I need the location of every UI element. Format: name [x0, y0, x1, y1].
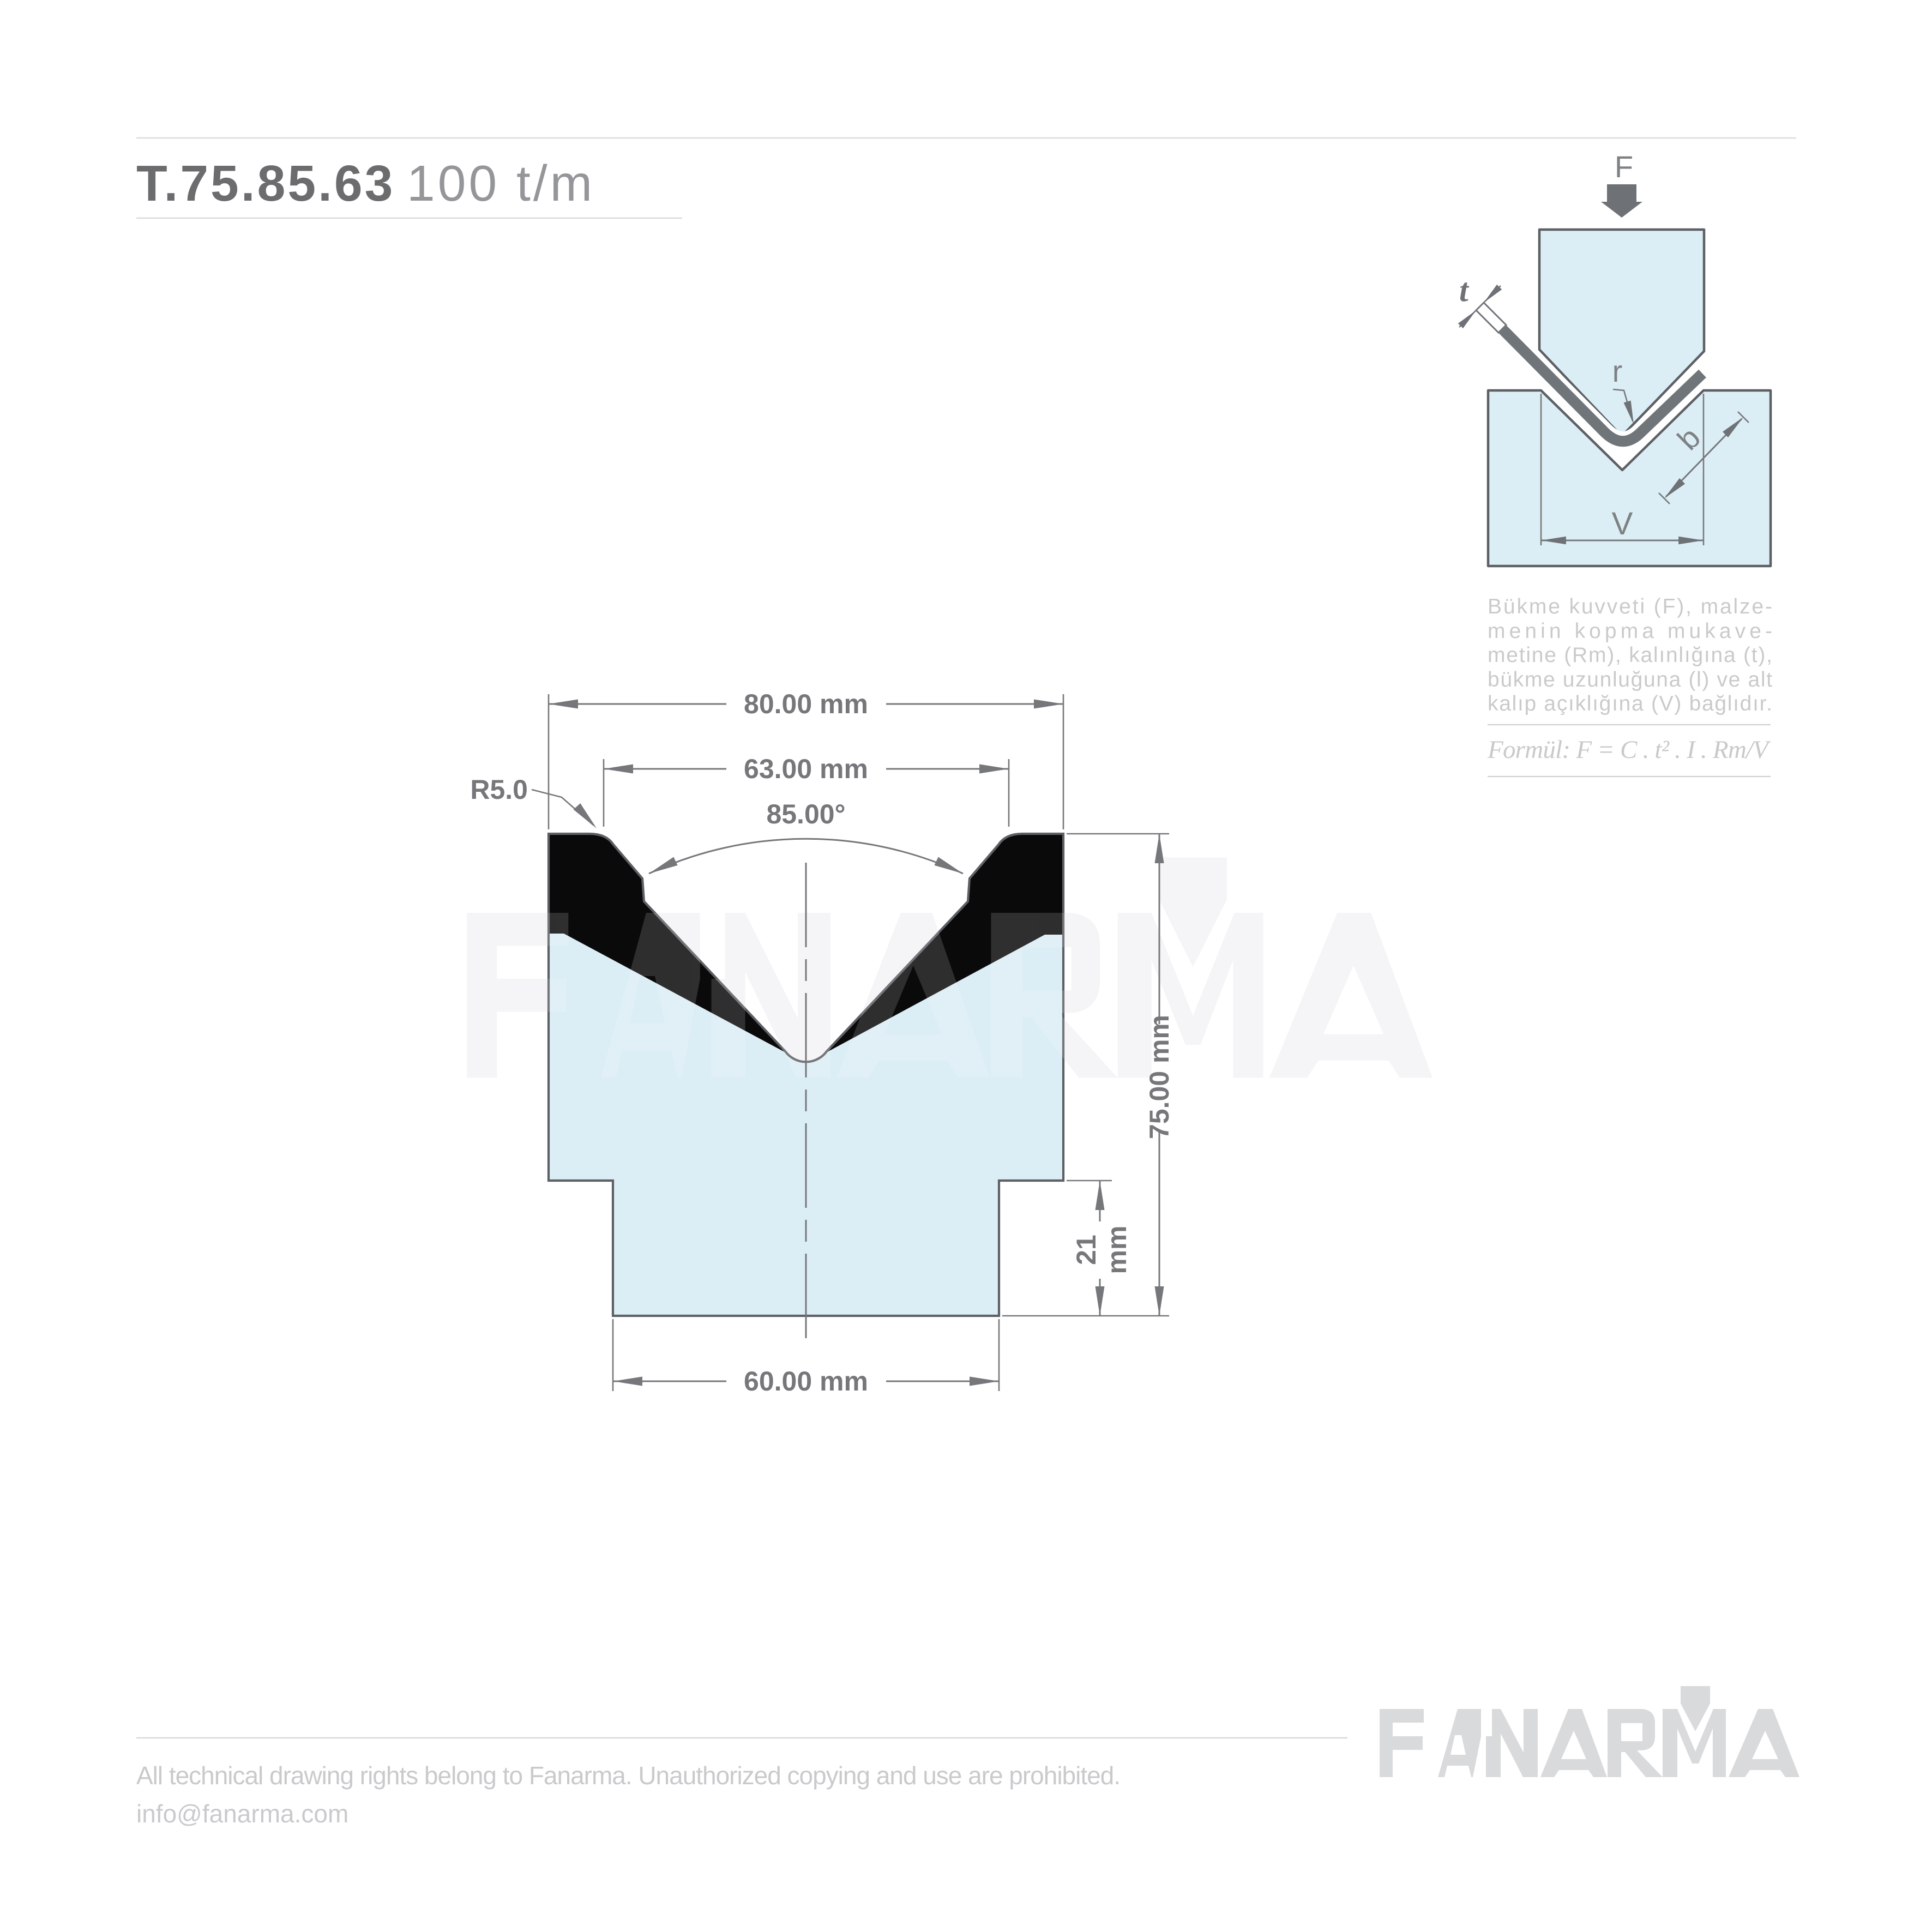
svg-text:bükme uzunluğuna (l) ve alt: bükme uzunluğuna (l) ve alt: [1488, 668, 1772, 691]
svg-text:100 t/m: 100 t/m: [407, 155, 595, 212]
svg-text:All technical drawing rights b: All technical drawing rights belong to F…: [136, 1761, 1121, 1790]
svg-text:info@fanarma.com: info@fanarma.com: [136, 1799, 348, 1828]
svg-text:t: t: [1459, 272, 1470, 308]
svg-text:F: F: [1615, 149, 1633, 184]
svg-text:Formül: F = C . t² . I . Rm/V: Formül: F = C . t² . I . Rm/V: [1487, 736, 1771, 764]
svg-text:75.00 mm: 75.00 mm: [1144, 1015, 1175, 1139]
svg-text:80.00 mm: 80.00 mm: [744, 689, 868, 719]
svg-text:T.75.85.63: T.75.85.63: [136, 155, 395, 212]
svg-text:r: r: [1612, 354, 1623, 388]
svg-text:mm: mm: [1102, 1226, 1132, 1274]
svg-text:R5.0: R5.0: [470, 774, 528, 805]
svg-text:V: V: [1612, 506, 1633, 541]
svg-text:60.00 mm: 60.00 mm: [744, 1366, 868, 1397]
svg-text:63.00 mm: 63.00 mm: [744, 754, 868, 784]
svg-text:21: 21: [1071, 1235, 1102, 1265]
svg-text:85.00°: 85.00°: [766, 799, 845, 829]
svg-text:metine (Rm), kalınlığına (t),: metine (Rm), kalınlığına (t),: [1488, 643, 1772, 667]
svg-text:kalıp açıklığına (V) bağlıdır.: kalıp açıklığına (V) bağlıdır.: [1488, 692, 1772, 715]
svg-text:menin kopma mukave-: menin kopma mukave-: [1488, 619, 1772, 643]
svg-text:Bükme kuvveti (F), malze-: Bükme kuvveti (F), malze-: [1488, 595, 1772, 618]
